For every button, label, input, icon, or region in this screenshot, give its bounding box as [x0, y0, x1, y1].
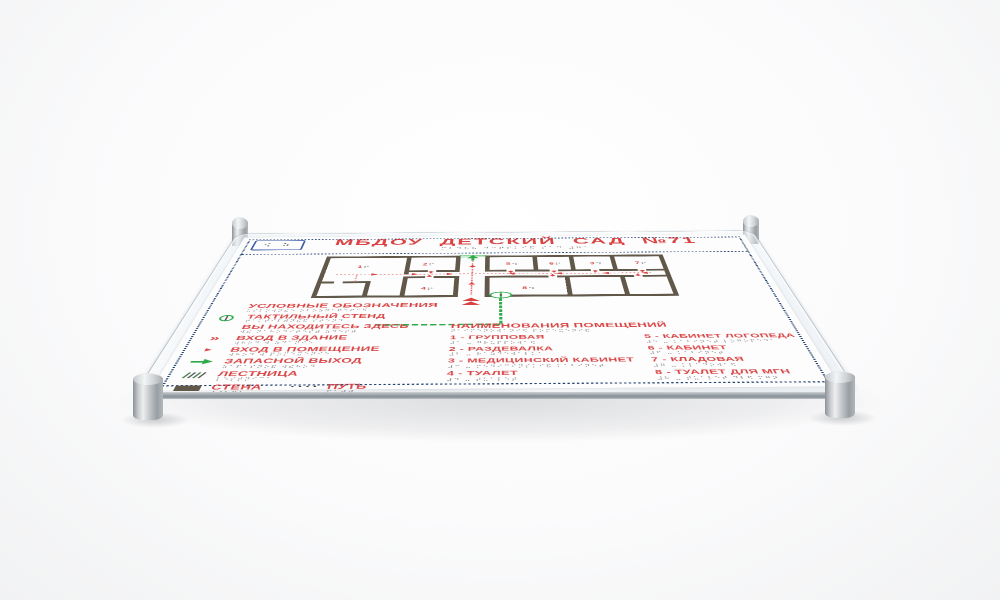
legend-item-room-entrance: ► ВХОД В ПОМЕЩЕНИЕ ⠺⠓⠕⠙ ⠺ ⠏⠕⠍⠑⠭⠑⠝⠊⠑ [189, 345, 445, 357]
printed-panel: ⠪ ⠵ МБДОУ ДЕТСКИЙ САД №71 ⠍⠃⠙⠕⠥ ⠙⠑⠞⠎⠅⠊⠯ … [151, 234, 841, 390]
room-names-list: НАИМЕНОВАНИЯ ПОМЕЩЕНИЙ ⠝⠁⠊⠍⠑⠝⠕⠺⠁⠝⠊⠫ ⠏⠕⠍⠑… [446, 321, 828, 384]
braille-text: ⠼⠛ ⠤ ⠅⠇⠁⠙⠕⠺⠁⠫ [652, 362, 819, 367]
product-photo-scene: ⠪ ⠵ МБДОУ ДЕТСКИЙ САД №71 ⠍⠃⠙⠕⠥ ⠙⠑⠞⠎⠅⠊⠯ … [0, 0, 1000, 600]
legend-item-text: ЛЕСТНИЦА ⠇⠑⠎⠞⠝⠊⠉⠁ [214, 370, 299, 382]
room-entrance-icon: ► [189, 346, 226, 357]
room-list-item: 8 - ТУАЛЕТ ДЛЯ МГН ⠼⠓ ⠤ ⠞⠥⠁⠇⠑⠞ ⠙⠇⠫ ⠍⠛⠝ [654, 369, 827, 381]
path-arrows [368, 264, 651, 285]
plate-tilt-wrapper: ⠪ ⠵ МБДОУ ДЕТСКИЙ САД №71 ⠍⠃⠙⠕⠥ ⠙⠑⠞⠎⠅⠊⠯ … [0, 0, 1000, 603]
room-list-item: 4 - ТУАЛЕТ ⠼⠙ ⠤ ⠞⠥⠁⠇⠑⠞ [446, 370, 646, 382]
room-number: 1 [357, 265, 363, 268]
braille-text: ⠼⠉ ⠤ ⠍⠑⠙⠊⠉⠊⠝⠎⠅⠊⠯ ⠅⠁⠃⠊⠝⠑⠞ [447, 364, 642, 370]
room-list-item: 6 - КАБИНЕТ ⠼⠋ ⠤ ⠅⠁⠃⠊⠝⠑⠞ [647, 344, 812, 355]
legend-item-text: ВЫ НАХОДИТЕСЬ ЗДЕСЬ ⠺⠮ ⠝⠁⠓⠕⠙⠊⠞⠑⠎⠾ ⠵⠙⠑⠎⠾ [238, 323, 409, 334]
building-entrance-marker [462, 298, 480, 305]
room-number: 8 [522, 286, 527, 290]
braille-text: ⠼⠋ ⠤ ⠅⠁⠃⠊⠝⠑⠞ [649, 350, 812, 355]
legend-item-emergency-exit: ЗАПАСНОЙ ВЫХОД ⠵⠁⠏⠁⠎⠝⠕⠯ ⠺⠮⠓⠕⠙ [182, 357, 444, 370]
building-entrance-icon: » [196, 335, 232, 345]
you-are-here-spacer [202, 324, 237, 334]
room-list-item: 3 - МЕДИЦИНСКИЙ КАБИНЕТ ⠼⠉ ⠤ ⠍⠑⠙⠊⠉⠊⠝⠎⠅⠊⠯… [447, 357, 642, 369]
you-are-here-connector-vertical [499, 298, 503, 323]
plan-walls [314, 255, 677, 297]
room-number: 6 [549, 262, 554, 265]
floor-plan: 1 2 5 6 3 7 4 8 [307, 254, 683, 306]
room-number: 3 [589, 262, 595, 265]
emergency-exit-marker [460, 255, 486, 261]
braille-logo-dots: ⠪ ⠵ [261, 243, 295, 248]
emergency-exit-icon [182, 358, 220, 369]
you-are-here-marker [491, 292, 512, 298]
legend-item-stairs: ЛЕСТНИЦА ⠇⠑⠎⠞⠝⠊⠉⠁ [174, 369, 442, 382]
rooms-header: НАИМЕНОВАНИЯ ПОМЕЩЕНИЙ ⠝⠁⠊⠍⠑⠝⠕⠺⠁⠝⠊⠫ ⠏⠕⠍⠑… [450, 321, 797, 333]
rooms-column-left: 1 - ГРУППОВАЯ ⠼⠁ ⠤ ⠛⠗⠥⠏⠏⠕⠺⠁⠫ 2 - РАЗДЕВА… [446, 334, 646, 384]
rooms-columns: 1 - ГРУППОВАЯ ⠼⠁ ⠤ ⠛⠗⠥⠏⠏⠕⠺⠁⠫ 2 - РАЗДЕВА… [446, 333, 828, 384]
room-list-item: 2 - РАЗДЕВАЛКА ⠼⠃ ⠤ ⠗⠁⠵⠙⠑⠺⠁⠇⠅⠁ [448, 346, 639, 357]
acrylic-front-edge [140, 392, 852, 399]
standoff-cap [133, 373, 163, 385]
room-list-item: 7 - КЛАДОВАЯ ⠼⠛ ⠤ ⠅⠇⠁⠙⠕⠺⠁⠫ [651, 356, 819, 368]
legend-item-text: ЗАПАСНОЙ ВЫХОД ⠵⠁⠏⠁⠎⠝⠕⠯ ⠺⠮⠓⠕⠙ [221, 357, 363, 369]
legend-item-text: ВХОД В ЗДАНИЕ ⠺⠓⠕⠙ ⠺ ⠵⠙⠁⠝⠊⠑ [233, 334, 348, 345]
legend-item-text: ВХОД В ПОМЕЩЕНИЕ ⠺⠓⠕⠙ ⠺ ⠏⠕⠍⠑⠭⠑⠝⠊⠑ [227, 345, 381, 357]
room-list-item: 1 - ГРУППОВАЯ ⠼⠁ ⠤ ⠛⠗⠥⠏⠏⠕⠺⠁⠫ [449, 334, 635, 345]
legend-item-text: ТАКТИЛЬНЫЙ СТЕНД ⠞⠁⠅⠞⠊⠇⠾⠝⠮⠯ ⠎⠞⠑⠝⠙ [244, 313, 386, 323]
room-number: 7 [635, 262, 641, 265]
standoff-cap [825, 371, 855, 383]
evacuation-sign-plate: ⠪ ⠵ МБДОУ ДЕТСКИЙ САД №71 ⠍⠃⠙⠕⠥ ⠙⠑⠞⠎⠅⠊⠯ … [132, 231, 860, 398]
braille-text: ⠼⠑ ⠤ ⠅⠁⠃⠊⠝⠑⠞ ⠇⠕⠛⠕⠏⠑⠙⠁ [645, 339, 804, 344]
braille-text: ⠼⠁ ⠤ ⠛⠗⠥⠏⠏⠕⠺⠁⠫ [449, 340, 635, 345]
braille-text: ⠼⠙ ⠤ ⠞⠥⠁⠇⠑⠞ [446, 376, 646, 382]
room-number: 5 [506, 262, 511, 265]
braille-text: ⠼⠓ ⠤ ⠞⠥⠁⠇⠑⠞ ⠙⠇⠫ ⠍⠛⠝ [656, 375, 827, 381]
room-list-item: 5 - КАБИНЕТ ЛОГОПЕДА ⠼⠑ ⠤ ⠅⠁⠃⠊⠝⠑⠞ ⠇⠕⠛⠕⠏⠑… [644, 333, 805, 344]
legend-item-tactile-stand: ТАКТИЛЬНЫЙ СТЕНД ⠞⠁⠅⠞⠊⠇⠾⠝⠮⠯ ⠎⠞⠑⠝⠙ [208, 313, 448, 324]
tactile-stand-icon [208, 314, 242, 324]
legend-item-you-are-here: ВЫ НАХОДИТЕСЬ ЗДЕСЬ ⠺⠮ ⠝⠁⠓⠕⠙⠊⠞⠑⠎⠾ ⠵⠙⠑⠎⠾ [202, 323, 447, 334]
braille-text: ⠇⠑⠎⠞⠝⠊⠉⠁ [214, 377, 297, 382]
legend-item-label: СТЕНА [210, 383, 264, 391]
main-exit-path [471, 258, 473, 294]
legend-header: УСЛОВНЫЕ ОБОЗНАЧЕНИЯ ⠥⠎⠇⠕⠺⠝⠮⠑ ⠕⠃⠕⠵⠝⠁⠟⠑⠝⠊… [245, 302, 449, 313]
room-number: 4 [421, 287, 427, 291]
standoff-front-right [825, 376, 855, 418]
braille-logo-box: ⠪ ⠵ [250, 240, 306, 250]
legend-item-label: ПУТЬ [326, 383, 367, 391]
stairs-icon [174, 371, 213, 383]
standoff-front-left [133, 378, 163, 420]
legend-item-building-entrance: » ВХОД В ЗДАНИЕ ⠺⠓⠕⠙ ⠺ ⠵⠙⠁⠝⠊⠑ [196, 334, 446, 346]
rooms-column-right: 5 - КАБИНЕТ ЛОГОПЕДА ⠼⠑ ⠤ ⠅⠁⠃⠊⠝⠑⠞ ⠇⠕⠛⠕⠏⠑… [644, 333, 828, 382]
room-number: 2 [423, 263, 428, 266]
